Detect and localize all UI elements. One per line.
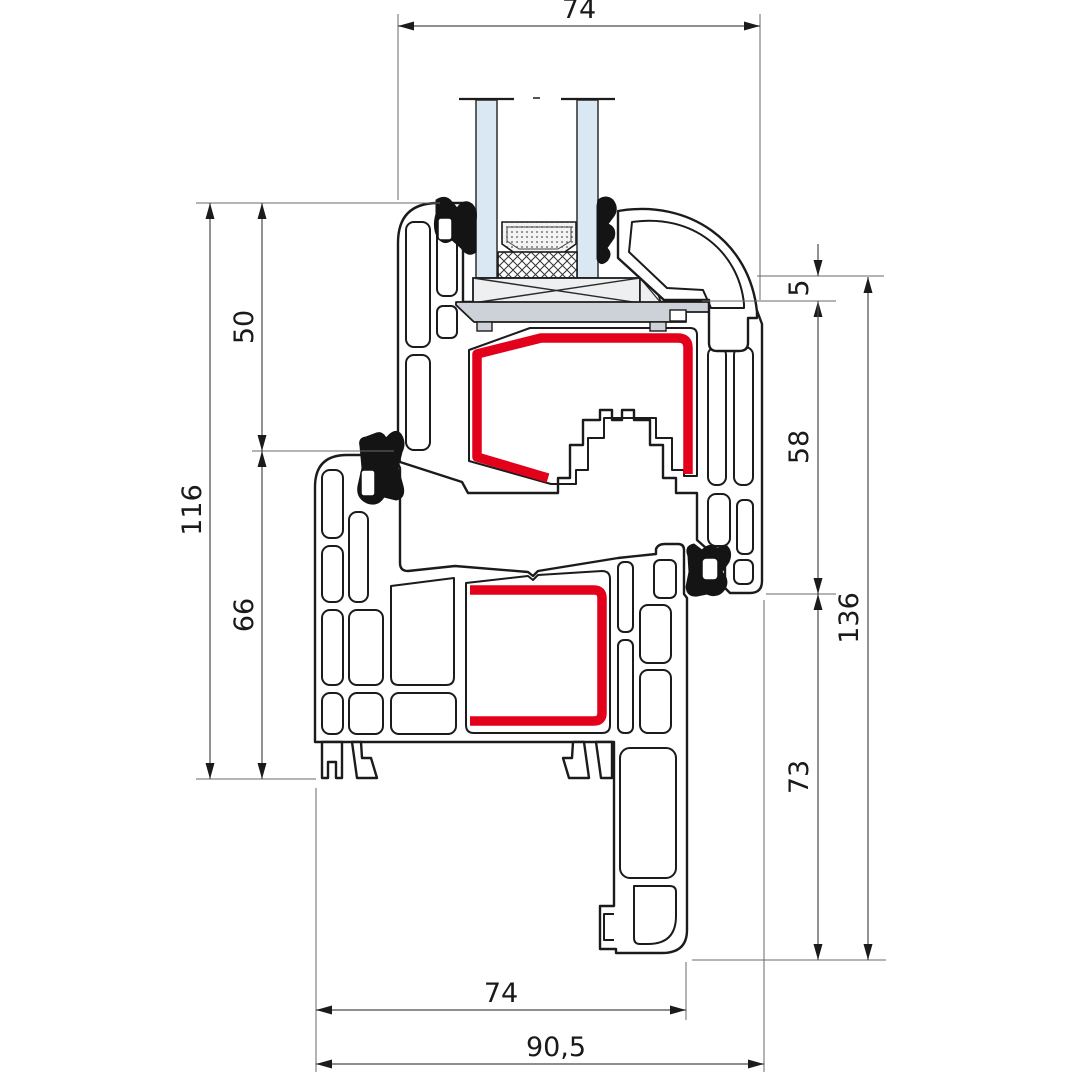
dim-right-lower-73: 73 bbox=[784, 594, 823, 960]
glass-pane-left bbox=[476, 100, 497, 278]
dim-label-bottom-total: 90,5 bbox=[526, 1032, 586, 1063]
gasket-frame-right-groove bbox=[702, 558, 718, 580]
dim-label-right-total: 136 bbox=[834, 592, 865, 644]
dim-left-upper-50: 50 bbox=[229, 203, 394, 451]
dim-label-right-lower: 73 bbox=[784, 760, 815, 794]
sealant-crosshatch bbox=[498, 252, 577, 278]
dim-label-right-offset: 5 bbox=[784, 279, 815, 296]
technical-drawing-canvas: 74 116 50 66 bbox=[0, 0, 1080, 1080]
dim-label-left-lower: 66 bbox=[229, 598, 260, 632]
dim-label-bottom-frame: 74 bbox=[484, 978, 518, 1009]
dim-right-sash-58: 58 bbox=[766, 301, 836, 594]
glass-pane-right bbox=[577, 100, 598, 278]
dimensions: 74 116 50 66 bbox=[177, 0, 886, 1072]
frame-foot bbox=[596, 742, 612, 778]
frame-foot bbox=[352, 742, 377, 778]
dim-label-right-sash: 58 bbox=[784, 430, 815, 464]
gasket-glass-left-groove bbox=[438, 218, 452, 240]
gasket-frame-left-groove bbox=[361, 470, 375, 496]
dim-left-lower-66: 66 bbox=[229, 451, 267, 779]
glazing-block bbox=[473, 278, 661, 303]
dim-label-top-width: 74 bbox=[562, 0, 596, 25]
dim-label-left-total: 116 bbox=[177, 484, 208, 536]
frame-foot bbox=[563, 742, 589, 778]
gasket-glass-right bbox=[597, 197, 616, 264]
dim-label-left-upper: 50 bbox=[229, 310, 260, 344]
frame-profile bbox=[315, 455, 687, 953]
frame-foot bbox=[322, 742, 342, 778]
profile-cross-section-svg: 74 116 50 66 bbox=[0, 0, 1080, 1080]
